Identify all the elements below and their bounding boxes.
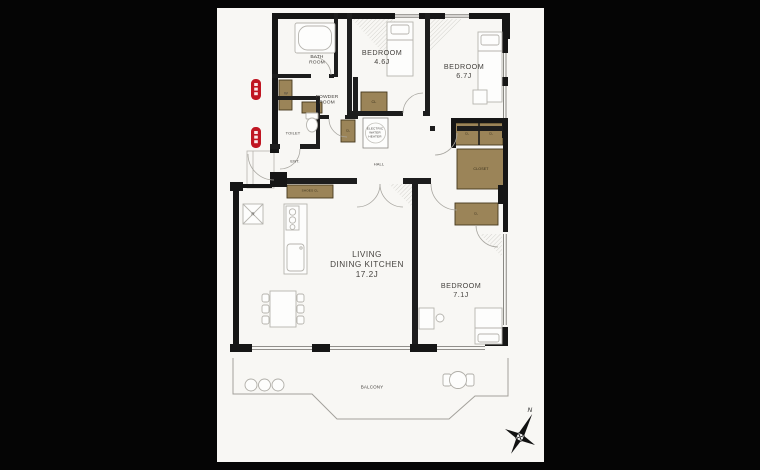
bedroom-c-desk bbox=[419, 308, 434, 329]
bed-bedroom-c bbox=[419, 308, 502, 344]
hall-label: HALL bbox=[374, 162, 385, 167]
hall-closet-label: CL bbox=[346, 129, 350, 133]
entrance-porch bbox=[247, 151, 274, 188]
compass-north-label: N bbox=[528, 407, 533, 415]
bedroom-c-closet-label: CL bbox=[474, 212, 478, 216]
dining-table bbox=[262, 291, 304, 327]
closet-cl-right-label: CL bbox=[489, 132, 493, 136]
powder-room-label: POWDER ROOM bbox=[316, 94, 339, 106]
refrigerator-label: R bbox=[251, 211, 254, 216]
red-badge-1 bbox=[251, 79, 261, 100]
closets bbox=[279, 80, 505, 225]
bath-room-label: BATH ROOM bbox=[309, 54, 325, 66]
washer-label: W bbox=[284, 91, 288, 96]
bedroom-a-closet-label: CL bbox=[372, 100, 377, 104]
stove bbox=[286, 206, 299, 230]
bedroom-c-label: BEDROOM 7.1J bbox=[441, 282, 481, 300]
bedroom-a-label: BEDROOM 4.6J bbox=[362, 49, 402, 67]
floor-plan-sheet: BATH ROOM BEDROOM 4.6J BEDROOM 6.7J POWD… bbox=[217, 8, 544, 462]
large-closet-label: CLOSET bbox=[473, 167, 488, 171]
bedroom-b-desk bbox=[473, 90, 487, 104]
red-badge-2 bbox=[251, 127, 261, 148]
kitchen-counter bbox=[284, 204, 307, 274]
balcony-label: BALCONY bbox=[361, 384, 383, 389]
bedroom-b-label: BEDROOM 6.7J bbox=[444, 63, 484, 81]
water-heater-label: ELECTRIC WATER HEATER bbox=[367, 127, 383, 138]
floor-plan-drawing bbox=[217, 8, 544, 462]
floor-plan-page: BATH ROOM BEDROOM 4.6J BEDROOM 6.7J POWD… bbox=[0, 0, 760, 470]
toilet-label: TOILET bbox=[286, 131, 301, 136]
shoes-closet-label: SHOES CL bbox=[302, 189, 319, 193]
closet-cl-left-label: CL bbox=[465, 132, 469, 136]
bathtub bbox=[295, 23, 335, 53]
balcony-table-set bbox=[443, 372, 474, 389]
ldk-label: LIVING DINING KITCHEN 17.2J bbox=[330, 250, 404, 280]
compass-rose bbox=[496, 406, 544, 462]
entrance-label: ENT. bbox=[290, 159, 299, 164]
toilet-fixture bbox=[306, 113, 318, 132]
balcony-planters bbox=[245, 379, 284, 391]
